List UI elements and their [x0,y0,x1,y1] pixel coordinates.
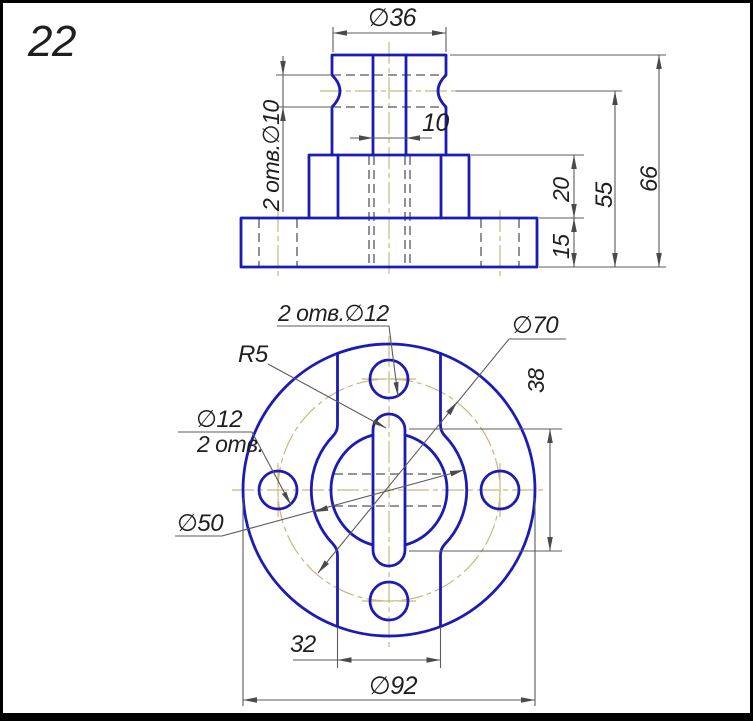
plan-view: 2 отв.∅12 R5 ∅70 ∅50 ∅12 2 отв. [175,300,566,706]
dim-label-d92: ∅92 [369,672,418,700]
arrowhead [450,470,464,476]
arrowhead [571,204,577,218]
arrowhead [394,382,399,396]
arrowhead [333,30,347,36]
drawing-sheet: ∅36 10 2 отв.∅10 20 15 [0,0,753,721]
arrowhead [656,253,662,267]
arrowhead [547,537,553,551]
arrowhead [427,657,441,663]
arrowhead [359,135,373,141]
dim-label-66: 66 [636,165,663,192]
arrowhead [406,135,420,141]
dim-label-38: 38 [523,368,549,393]
dim-label-d50: ∅50 [177,510,224,537]
dim-label-20: 20 [548,177,574,203]
arrowhead [547,429,553,443]
arrowhead [314,505,328,512]
dim-label-2otv-d12: 2 отв.∅12 [277,300,389,326]
dim-label-d36: ∅36 [368,4,417,32]
front-view: ∅36 10 2 отв.∅10 20 15 [241,4,666,278]
dim-label-2otv: 2 отв. [196,431,264,457]
arrowhead [571,155,577,169]
arrowhead [656,55,662,69]
arrowhead [432,30,446,36]
dim-label-15: 15 [548,234,574,259]
arrowhead [521,697,535,703]
dim-label-55: 55 [591,181,618,208]
arrowhead [243,697,257,703]
arrowhead [338,657,352,663]
dim-label-10: 10 [422,109,449,137]
dim-label-r5: R5 [238,341,269,368]
arrowhead [280,61,286,75]
dim-label-32: 32 [290,631,316,658]
arrowhead [282,492,291,505]
drawing-canvas: ∅36 10 2 отв.∅10 20 15 [0,0,753,721]
arrowhead [571,218,577,232]
arrowhead [612,253,618,267]
sheet-number: 22 [27,17,76,66]
dim-label-d12: ∅12 [196,406,242,433]
dim-label-2otv-d10: 2 отв.∅10 [258,100,284,212]
plan-leader-r5 [268,364,386,428]
dim-label-d70: ∅70 [512,312,559,339]
arrowhead [612,91,618,105]
